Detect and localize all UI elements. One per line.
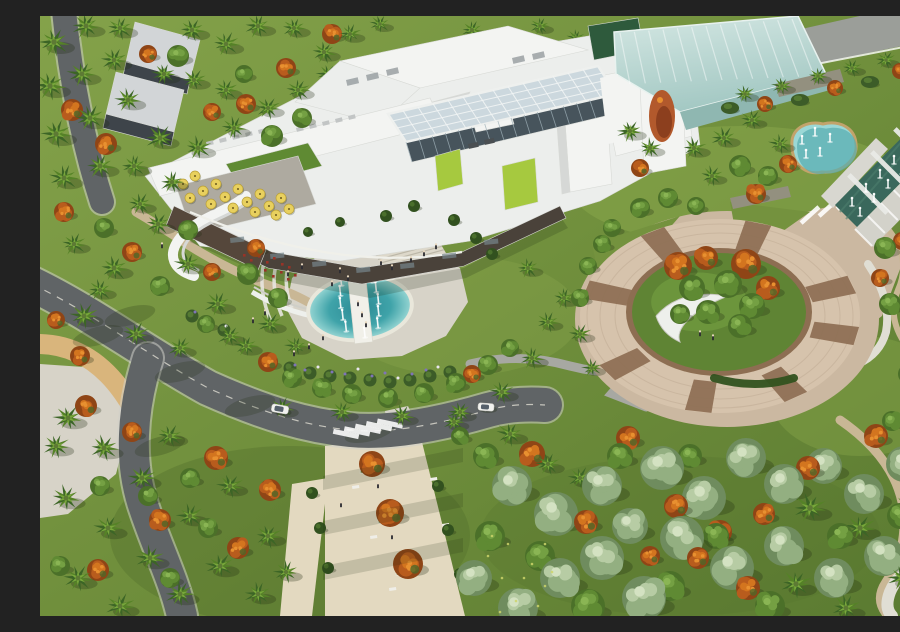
bloom-speck: [406, 564, 411, 569]
person: [322, 336, 324, 340]
bloom-speck: [674, 266, 678, 270]
umbrella-pole: [268, 205, 270, 207]
shrub-highlight: [794, 95, 802, 101]
canopy-highlight: [533, 548, 540, 555]
bloom-speck: [253, 245, 256, 248]
bloom-speck: [584, 525, 588, 529]
canopy-highlight: [763, 598, 770, 605]
person-head: [391, 264, 393, 266]
jet-splash: [812, 135, 818, 137]
leaf-gap: [100, 571, 107, 578]
person-head: [712, 334, 714, 336]
bloom-speck: [768, 508, 772, 512]
bloom-speck: [581, 516, 585, 520]
jet-top: [887, 179, 890, 182]
canopy-blob: [208, 520, 214, 526]
cafe-chair: [287, 278, 290, 281]
palm-crown: [266, 106, 270, 110]
canopy-blob: [207, 267, 213, 273]
palm-crown: [47, 83, 52, 88]
palm-crown: [51, 39, 56, 44]
canopy-highlight: [298, 113, 303, 118]
jet-top: [851, 197, 854, 200]
palm-crown: [590, 366, 594, 370]
canopy-blob: [724, 281, 738, 295]
canopy-highlight: [166, 573, 171, 578]
canopy-highlight: [834, 529, 840, 535]
canopy-highlight: [509, 597, 519, 607]
topiary-highlight: [488, 250, 493, 255]
jet-splash: [871, 201, 877, 203]
topiary-highlight: [410, 202, 415, 207]
bloom-speck: [60, 212, 63, 215]
person-head: [699, 330, 701, 332]
palm-crown: [780, 84, 784, 88]
bloom-speck: [58, 316, 61, 319]
leaf-gap: [134, 433, 140, 439]
bloom-speck: [84, 404, 88, 408]
canopy-blob: [178, 50, 185, 57]
yellow-flower-fleck: [537, 605, 540, 608]
canopy-blob: [768, 169, 774, 175]
umbrella-pole: [224, 196, 226, 198]
leaf-gap: [748, 265, 757, 274]
bloom-speck: [333, 31, 336, 34]
canopy-highlight: [652, 456, 663, 467]
leaf-gap: [272, 491, 279, 498]
palm-crown: [228, 334, 232, 338]
canopy-highlight: [96, 481, 101, 486]
yellow-flower-fleck: [501, 577, 504, 580]
canopy-blob: [740, 583, 748, 591]
canopy-highlight: [825, 567, 835, 577]
canopy-highlight: [484, 360, 489, 365]
bloom-speck: [265, 487, 269, 491]
palm-crown: [452, 420, 456, 424]
cafe-chair: [281, 263, 284, 266]
palm-crown: [196, 146, 201, 151]
leaf-gap: [750, 589, 757, 596]
leaf-gap: [708, 259, 715, 266]
person: [377, 484, 379, 488]
yellow-flower-fleck: [544, 543, 547, 546]
canopy-blob: [145, 49, 151, 55]
bloom-speck: [696, 559, 700, 563]
jet-splash: [799, 143, 805, 145]
palm-crown: [256, 592, 261, 597]
topiary: [486, 248, 498, 260]
palm-crown: [54, 444, 59, 449]
palm-crown: [850, 66, 854, 70]
bloom-speck: [285, 65, 288, 68]
flower-dot: [344, 373, 347, 376]
canopy-highlight: [692, 201, 696, 205]
flower-dot: [317, 366, 320, 369]
person-head: [252, 317, 254, 319]
palm-crown: [538, 24, 542, 28]
bloom-speck: [129, 248, 132, 251]
bloom-speck: [133, 248, 136, 251]
palm-crown: [266, 534, 271, 539]
canopy-highlight: [775, 473, 785, 483]
bed-shrub-light: [306, 369, 312, 375]
jet-splash: [803, 157, 809, 159]
person-head: [287, 270, 289, 272]
topiary-highlight: [316, 524, 321, 529]
bloom-speck: [757, 191, 760, 194]
canopy-highlight: [240, 69, 244, 73]
canopy-highlight: [318, 383, 323, 388]
canopy-blob: [212, 106, 218, 112]
palm-crown: [857, 525, 862, 530]
palm-crown: [340, 410, 344, 414]
bloom-speck: [524, 451, 528, 455]
canopy-blob: [602, 474, 614, 486]
jet-splash: [885, 187, 891, 189]
palm-crown: [294, 344, 298, 348]
person: [301, 265, 303, 269]
palm-crown: [139, 475, 144, 480]
canopy-highlight: [593, 475, 603, 485]
person-head: [435, 243, 437, 245]
cafe-chair: [288, 266, 291, 269]
palm-crown: [348, 32, 352, 36]
canopy-highlight: [144, 491, 149, 496]
palm-crown: [170, 180, 174, 184]
umbrella-pole: [275, 214, 277, 216]
canopy-blob: [302, 111, 308, 117]
bloom-speck: [835, 86, 838, 89]
canopy-highlight: [722, 556, 733, 567]
bloom-speck: [99, 144, 103, 148]
canopy-blob: [708, 304, 715, 311]
fountain-jet: [342, 310, 343, 320]
flower-dot: [194, 311, 197, 314]
leaf-gap: [770, 289, 777, 296]
bloom-speck: [67, 209, 70, 212]
bloom-speck: [808, 464, 812, 468]
fountain-jet: [377, 318, 378, 328]
leaf-gap: [213, 272, 218, 277]
palm-crown: [322, 50, 326, 54]
leaf-gap: [213, 112, 218, 117]
leaf-gap: [836, 88, 841, 93]
canopy-blob: [880, 272, 886, 278]
canopy-highlight: [584, 261, 588, 265]
canopy-blob: [644, 583, 657, 596]
canopy-blob: [840, 526, 848, 534]
canopy-highlight: [880, 242, 885, 247]
bloom-speck: [241, 105, 244, 108]
topiary: [303, 227, 313, 237]
bloom-speck: [268, 492, 272, 496]
palm-crown: [112, 58, 117, 63]
leaf-gap: [766, 104, 771, 109]
person: [287, 272, 289, 276]
person-head: [340, 501, 342, 503]
palm-crown: [97, 163, 102, 168]
bloom-speck: [761, 105, 764, 108]
bloom-speck: [129, 433, 132, 436]
canopy-highlight: [456, 431, 460, 435]
bloom-speck: [69, 109, 73, 113]
flower-dot: [304, 369, 307, 372]
canopy-highlight: [855, 483, 865, 493]
bloom-speck: [208, 273, 211, 276]
topiary: [442, 524, 454, 536]
jet-top: [865, 183, 868, 186]
bloom-speck: [129, 251, 132, 254]
palm-crown: [458, 410, 462, 414]
palm-crown: [126, 98, 131, 103]
flower-dot: [371, 375, 374, 378]
bloom-speck: [280, 64, 283, 67]
cafe-chair: [266, 261, 269, 264]
canopy-highlight: [737, 447, 747, 457]
canopy-highlight: [186, 473, 191, 478]
bloom-speck: [758, 514, 762, 518]
canopy-highlight: [452, 378, 457, 383]
person-head: [293, 350, 295, 352]
cafe-chair: [264, 269, 267, 272]
palm-crown: [111, 265, 116, 270]
canopy-highlight: [184, 225, 189, 230]
palm-crown: [224, 88, 228, 92]
bloom-speck: [93, 568, 97, 572]
car-roof: [481, 404, 489, 409]
green-panel-a: [435, 149, 463, 191]
canopy-blob: [284, 378, 294, 388]
palm-crown: [470, 28, 474, 32]
yellow-flower-fleck: [531, 563, 534, 566]
person-head: [322, 334, 324, 336]
aerial-site-render: [40, 16, 900, 616]
leaf-gap: [641, 168, 646, 173]
yellow-flower-fleck: [487, 555, 490, 558]
palm-crown: [79, 71, 84, 76]
bloom-speck: [746, 586, 750, 590]
person: [712, 336, 714, 340]
leaf-gap: [82, 357, 88, 363]
bloom-speck: [217, 451, 221, 455]
palm-crown: [156, 222, 161, 227]
palm-crown: [244, 344, 248, 348]
topiary-highlight: [434, 482, 439, 487]
leaf-gap: [630, 439, 637, 446]
canopy-blob: [863, 484, 875, 496]
palm-crown: [224, 42, 229, 47]
leaf-gap: [134, 253, 140, 259]
palm-crown: [118, 26, 123, 31]
canopy-highlight: [722, 276, 729, 283]
shrub-highlight: [864, 77, 872, 83]
leaf-gap: [66, 213, 72, 219]
leaf-gap: [288, 69, 294, 75]
palm-crown: [284, 570, 288, 574]
shrub-highlight: [724, 103, 732, 109]
palm-crown: [743, 92, 747, 96]
bloom-speck: [737, 258, 742, 263]
leaf-gap: [534, 455, 542, 463]
leaf-gap: [652, 557, 658, 563]
person-head: [423, 250, 425, 252]
flower-dot: [294, 364, 297, 367]
bloom-speck: [878, 280, 881, 283]
canopy-highlight: [503, 475, 513, 485]
palm-crown: [117, 603, 122, 608]
jet-splash: [891, 163, 897, 165]
canopy-highlight: [506, 343, 510, 347]
topiary: [432, 480, 444, 492]
leaf-gap: [881, 278, 886, 283]
canopy-highlight: [735, 320, 741, 326]
bloom-speck: [96, 570, 100, 574]
person-head: [380, 259, 382, 261]
bloom-speck: [874, 435, 878, 439]
canopy-highlight: [598, 239, 602, 243]
canopy-blob: [748, 579, 756, 587]
person: [435, 245, 437, 249]
jet-splash: [849, 205, 855, 207]
palm-crown: [750, 118, 754, 122]
bloom-speck: [766, 102, 769, 105]
palm-crown: [75, 575, 80, 580]
bloom-speck: [328, 29, 331, 32]
palm-crown: [132, 164, 137, 169]
bloom-speck: [162, 514, 166, 518]
leaf-gap: [240, 549, 247, 556]
palm-crown: [53, 131, 58, 136]
canopy-highlight: [202, 319, 206, 323]
bloom-speck: [701, 554, 705, 558]
palm-crown: [256, 24, 261, 29]
person-head: [331, 280, 333, 282]
canopy-highlight: [676, 309, 681, 314]
yellow-flower-fleck: [499, 611, 502, 614]
canopy-highlight: [483, 528, 490, 535]
umbrella-pole: [202, 190, 204, 192]
topiary-highlight: [382, 212, 387, 217]
palm-crown: [63, 495, 68, 500]
umbrella-pole: [259, 193, 261, 195]
canopy-blob: [602, 238, 607, 243]
canopy-highlight: [672, 526, 683, 537]
canopy-highlight: [100, 223, 105, 228]
canopy-highlight: [710, 529, 716, 535]
bloom-speck: [791, 161, 794, 164]
bloom-speck: [264, 364, 267, 367]
cafe-chair: [294, 274, 297, 277]
canopy-blob: [663, 452, 676, 465]
canopy-highlight: [173, 50, 178, 55]
leaf-gap: [766, 515, 773, 522]
person: [252, 319, 254, 323]
bloom-speck: [155, 518, 159, 522]
flower-dot: [437, 366, 440, 369]
canopy-highlight: [888, 416, 893, 421]
umbrella-pole: [189, 197, 191, 199]
bloom-speck: [76, 356, 79, 359]
umbrella-pole: [194, 175, 196, 177]
topiary-highlight: [305, 229, 309, 233]
bloom-speck: [144, 55, 147, 58]
palm-crown: [816, 74, 820, 78]
bloom-speck: [81, 351, 84, 354]
canopy-highlight: [420, 388, 425, 393]
palm-crown: [268, 322, 272, 326]
canopy-highlight: [685, 450, 691, 456]
yellow-flower-fleck: [507, 543, 510, 546]
mural-art-inner: [656, 106, 672, 138]
bloom-speck: [649, 550, 652, 553]
person-head: [391, 533, 393, 535]
person: [423, 252, 425, 256]
person-head: [410, 256, 412, 258]
bloom-speck: [528, 448, 532, 452]
bed-shrub-light: [188, 312, 194, 318]
palm-crown: [101, 445, 106, 450]
canopy-highlight: [875, 545, 885, 555]
leaf-gap: [108, 145, 115, 152]
bloom-speck: [66, 108, 70, 112]
palm-crown: [546, 320, 550, 324]
canopy-blob: [262, 357, 268, 363]
canopy-highlight: [267, 130, 272, 135]
umbrella-pole: [280, 197, 282, 199]
bloom-speck: [103, 142, 107, 146]
person: [331, 282, 333, 286]
palm-crown: [192, 78, 196, 82]
leaf-gap: [410, 565, 419, 574]
jet-top: [819, 147, 822, 150]
canopy-highlight: [480, 449, 486, 455]
bloom-speck: [100, 565, 104, 569]
leaf-gap: [878, 437, 885, 444]
person: [264, 311, 266, 315]
palm-crown: [648, 146, 652, 150]
leaf-gap: [149, 54, 154, 59]
topiary: [408, 200, 420, 212]
palm-crown: [508, 432, 513, 437]
leaf-gap: [57, 320, 62, 325]
topiary-highlight: [308, 489, 313, 494]
bloom-speck: [897, 68, 900, 71]
green-panel-b: [502, 158, 538, 210]
palm-crown: [190, 28, 195, 33]
person-head: [361, 311, 363, 313]
canopy-highlight: [764, 171, 769, 176]
canopy-highlight: [576, 293, 580, 297]
fountain-jet: [378, 306, 379, 316]
leaf-gap: [678, 507, 685, 514]
palm-crown: [72, 242, 76, 246]
palm-crown: [87, 115, 92, 120]
person-head: [161, 242, 163, 244]
bloom-speck: [645, 551, 648, 554]
cafe-chair: [280, 271, 283, 274]
person-head: [264, 309, 266, 311]
topiary-highlight: [450, 216, 455, 221]
canopy-blob: [184, 230, 194, 240]
palm-crown: [843, 605, 848, 610]
palm-crown: [188, 514, 193, 519]
person-head: [339, 267, 341, 269]
jet-top: [829, 133, 832, 136]
canopy-highlight: [156, 281, 161, 286]
canopy-highlight: [466, 568, 475, 577]
canopy-blob: [783, 544, 803, 564]
canopy-highlight: [546, 502, 557, 513]
